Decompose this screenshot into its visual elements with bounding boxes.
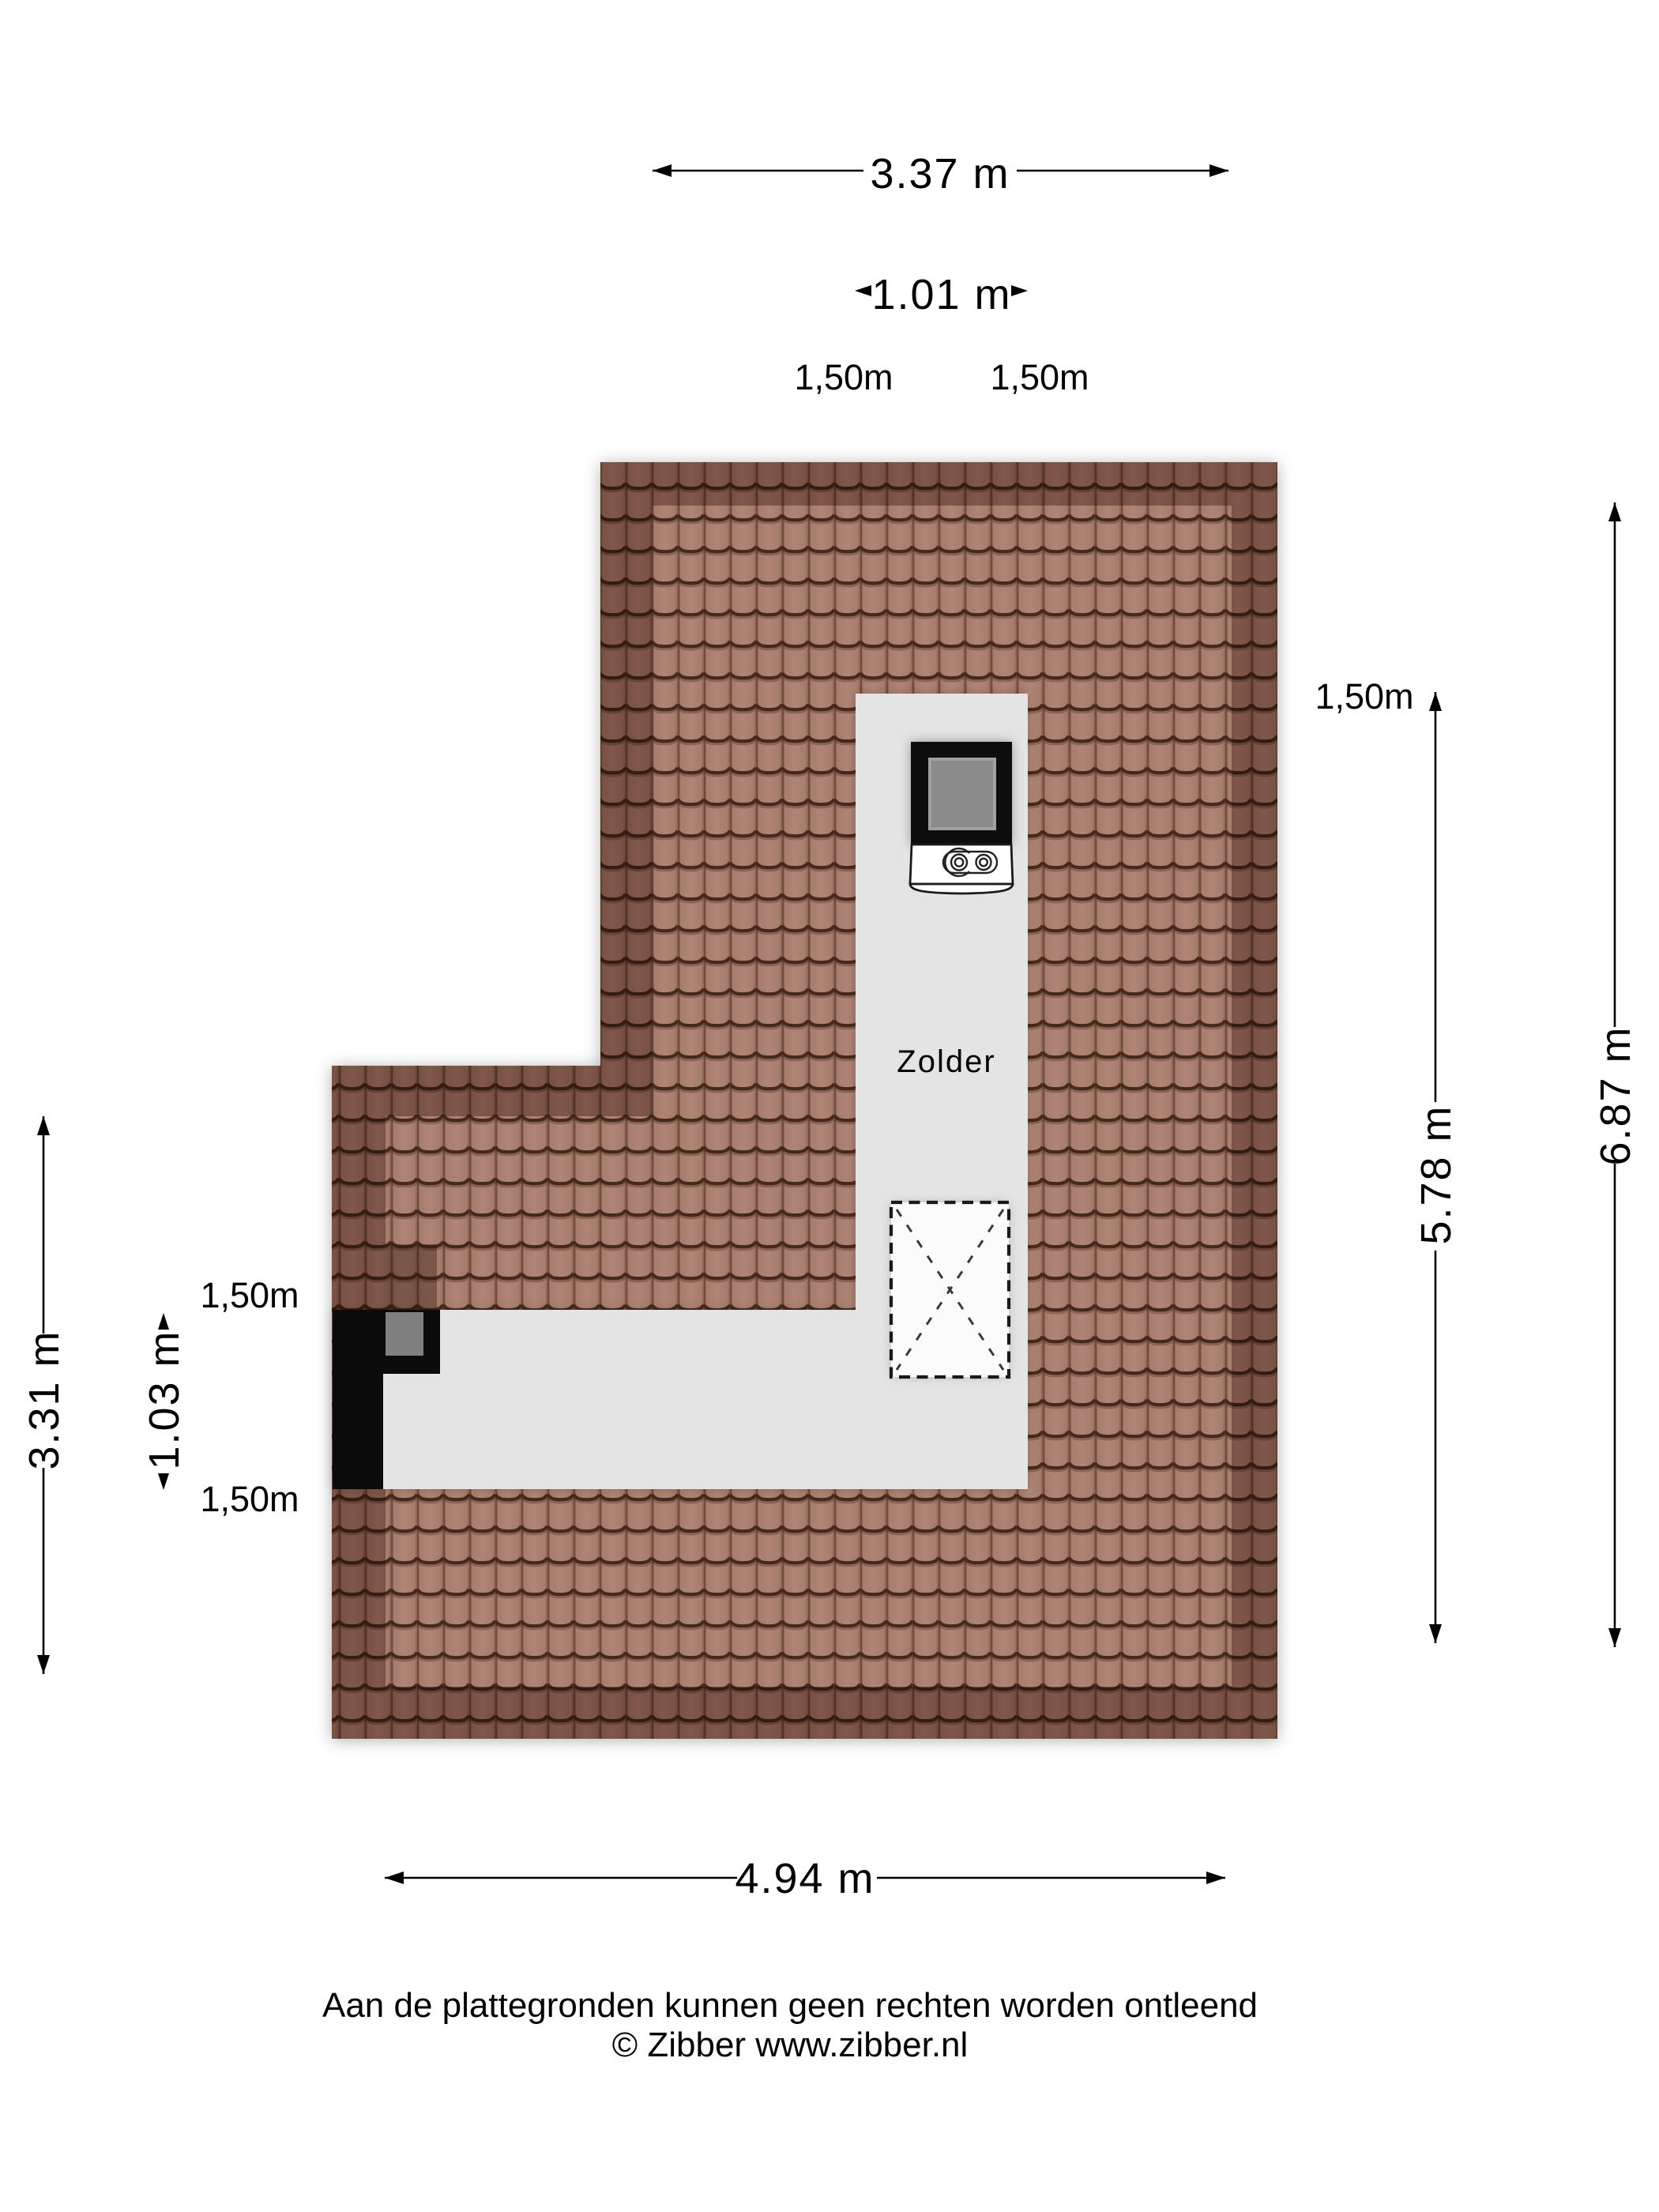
svg-text:4.94 m: 4.94 m xyxy=(735,1855,875,1902)
svg-text:1,50m: 1,50m xyxy=(1315,676,1413,717)
svg-text:1.01 m: 1.01 m xyxy=(871,271,1011,318)
svg-text:Zolder: Zolder xyxy=(897,1044,995,1079)
svg-text:1,50m: 1,50m xyxy=(990,357,1089,397)
svg-text:5.78 m: 5.78 m xyxy=(1413,1104,1460,1244)
svg-text:1,50m: 1,50m xyxy=(200,1479,299,1519)
svg-text:6.87 m: 6.87 m xyxy=(1592,1025,1639,1165)
svg-text:1,50m: 1,50m xyxy=(200,1275,299,1315)
svg-text:3.37 m: 3.37 m xyxy=(870,150,1010,197)
svg-text:3.31 m: 3.31 m xyxy=(21,1330,68,1469)
svg-text:© Zibber www.zibber.nl: © Zibber www.zibber.nl xyxy=(612,2026,969,2064)
svg-text:1.03 m: 1.03 m xyxy=(141,1330,188,1469)
svg-text:1,50m: 1,50m xyxy=(794,357,893,397)
svg-text:Aan de plattegronden kunnen ge: Aan de plattegronden kunnen geen rechten… xyxy=(322,1986,1258,2025)
